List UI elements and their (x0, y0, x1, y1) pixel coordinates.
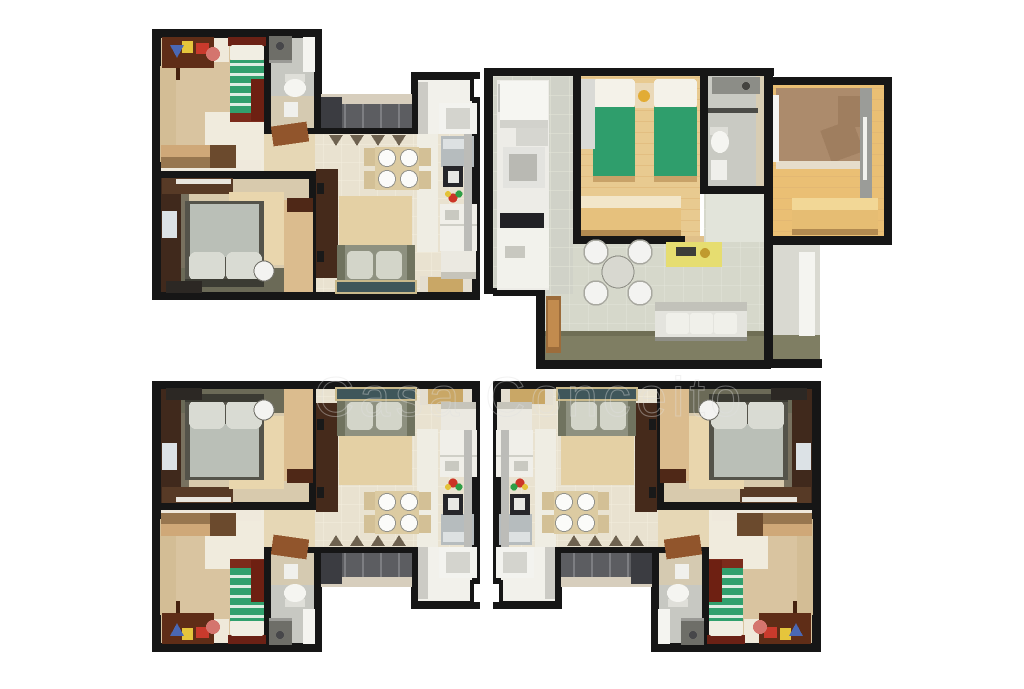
svg-text:Casa Conceito: Casa Conceito (314, 365, 746, 428)
